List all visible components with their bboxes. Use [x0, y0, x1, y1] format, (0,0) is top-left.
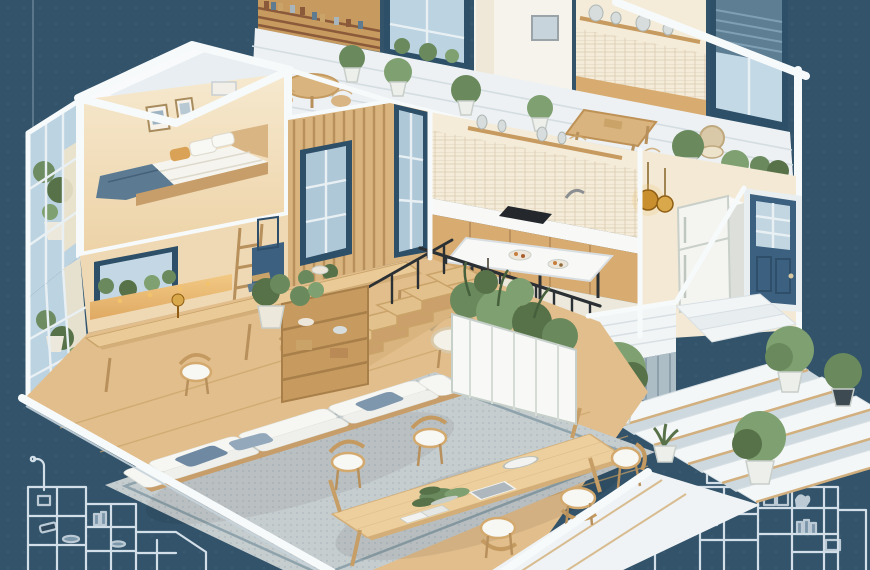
cutaway-illustration: Isometric cutaway illustration of a mult…: [0, 0, 870, 570]
dark-pot: [832, 389, 854, 406]
slat-screen-zone: [288, 103, 430, 288]
deck-chair: [331, 95, 351, 107]
under-stair-shelf: [282, 282, 368, 402]
curtain-strip: [476, 0, 494, 78]
scene-svg: Isometric cutaway illustration of a mult…: [0, 0, 870, 570]
wicker-chair: [700, 126, 724, 158]
slat-window: [300, 140, 352, 266]
slat-window: [394, 104, 428, 258]
wall-picture: [532, 16, 558, 40]
fridge: [678, 196, 746, 312]
pendant-bulb: [657, 196, 673, 212]
door-knob: [789, 274, 794, 279]
entry-door: [744, 188, 802, 312]
